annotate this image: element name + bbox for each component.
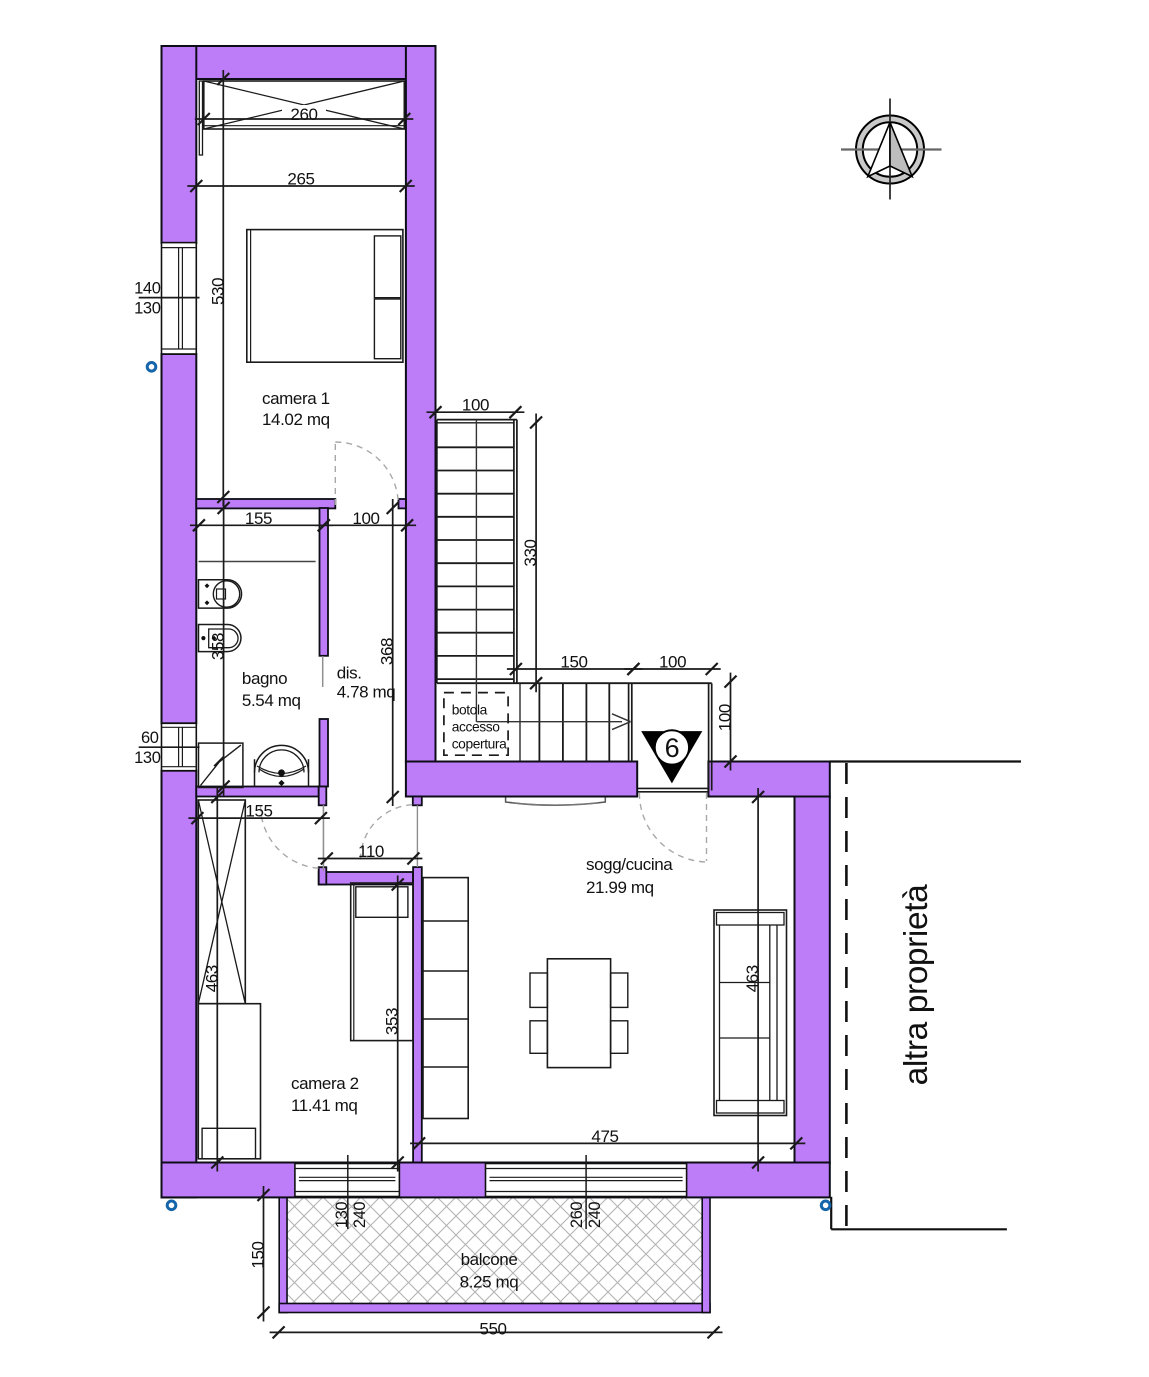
svg-text:100: 100 bbox=[716, 704, 735, 731]
svg-text:botola: botola bbox=[452, 703, 488, 718]
svg-text:bagno: bagno bbox=[242, 669, 287, 688]
svg-text:368: 368 bbox=[378, 638, 397, 665]
svg-text:358: 358 bbox=[209, 633, 228, 660]
svg-text:150: 150 bbox=[249, 1241, 268, 1268]
svg-text:14.02 mq: 14.02 mq bbox=[262, 410, 330, 429]
svg-text:260: 260 bbox=[290, 105, 317, 124]
svg-text:8.25 mq: 8.25 mq bbox=[460, 1273, 519, 1292]
svg-text:140: 140 bbox=[134, 279, 161, 297]
svg-text:altra proprietà: altra proprietà bbox=[898, 884, 935, 1085]
svg-text:130: 130 bbox=[134, 299, 161, 317]
svg-text:130: 130 bbox=[134, 749, 161, 767]
svg-text:accesso: accesso bbox=[452, 720, 501, 735]
svg-text:240: 240 bbox=[351, 1202, 369, 1229]
svg-text:60: 60 bbox=[141, 729, 159, 747]
svg-text:550: 550 bbox=[479, 1320, 506, 1339]
svg-text:150: 150 bbox=[560, 653, 587, 672]
svg-text:110: 110 bbox=[358, 842, 384, 861]
svg-text:530: 530 bbox=[208, 278, 227, 305]
svg-text:sogg/cucina: sogg/cucina bbox=[586, 855, 673, 874]
svg-text:155: 155 bbox=[245, 509, 272, 528]
svg-text:100: 100 bbox=[462, 396, 489, 415]
svg-text:330: 330 bbox=[521, 539, 540, 566]
svg-text:100: 100 bbox=[659, 653, 686, 672]
svg-text:265: 265 bbox=[287, 170, 314, 189]
svg-text:dis.: dis. bbox=[337, 664, 362, 683]
svg-text:4.78 mq: 4.78 mq bbox=[337, 683, 396, 702]
svg-text:6: 6 bbox=[665, 733, 680, 763]
svg-text:155: 155 bbox=[245, 802, 272, 821]
svg-text:camera 1: camera 1 bbox=[262, 389, 330, 408]
svg-text:463: 463 bbox=[202, 965, 221, 992]
svg-text:260: 260 bbox=[568, 1202, 586, 1229]
svg-text:463: 463 bbox=[743, 965, 762, 992]
svg-text:balcone: balcone bbox=[461, 1250, 518, 1269]
svg-text:camera 2: camera 2 bbox=[291, 1074, 359, 1093]
svg-text:5.54 mq: 5.54 mq bbox=[242, 691, 301, 710]
svg-text:11.41 mq: 11.41 mq bbox=[291, 1096, 357, 1115]
svg-text:130: 130 bbox=[333, 1202, 351, 1229]
svg-text:21.99 mq: 21.99 mq bbox=[586, 878, 654, 897]
svg-text:copertura: copertura bbox=[452, 737, 507, 752]
svg-text:475: 475 bbox=[591, 1127, 618, 1146]
svg-text:353: 353 bbox=[383, 1008, 402, 1035]
svg-text:100: 100 bbox=[352, 509, 379, 528]
svg-text:240: 240 bbox=[586, 1202, 604, 1229]
